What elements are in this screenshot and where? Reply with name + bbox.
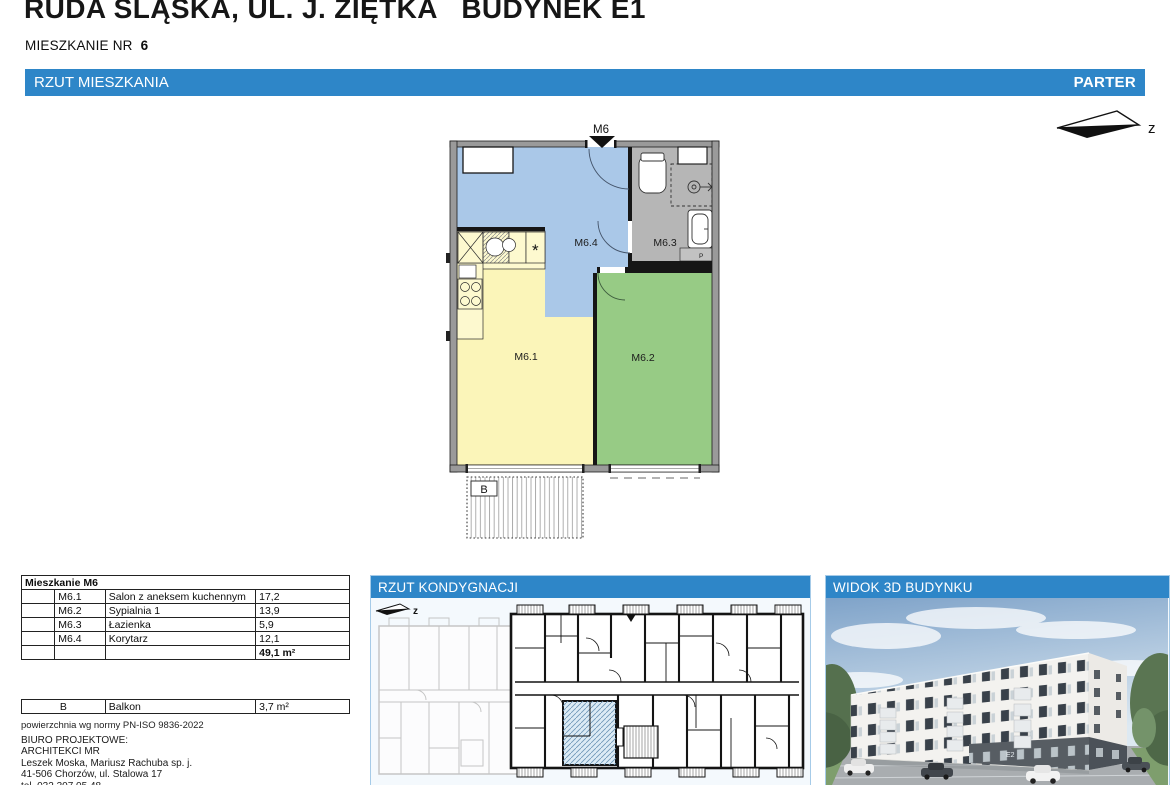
- storey-panel-header: RZUT KONDYGNACJI: [371, 576, 810, 598]
- ghost-building: [379, 618, 519, 774]
- storey-panel-title: RZUT KONDYGNACJI: [378, 580, 518, 595]
- balcony: B: [467, 477, 700, 538]
- shaft-box-hall: [463, 147, 513, 173]
- north-arrow-small-icon: z: [375, 601, 425, 619]
- apartment-label: MIESZKANIE NR: [25, 38, 133, 53]
- design-office-block: BIURO PROJEKTOWE: ARCHITEKCI MR Leszek M…: [21, 735, 192, 785]
- entrance-arrow-icon: [589, 136, 615, 148]
- bath-door-opening: [628, 221, 632, 253]
- washing-machine-label: P: [699, 253, 703, 260]
- kitchen-symbol: *: [532, 241, 539, 260]
- apartment-number: 6: [141, 38, 149, 53]
- office-line: tel. 032 307 05 48.: [21, 781, 192, 785]
- table-row: B Balkon 3,7 m²: [22, 700, 350, 714]
- balcony-code: B: [22, 700, 106, 714]
- room-code: M6.3: [55, 618, 105, 632]
- table-row: M6.2 Sypialnia 1 13,9: [22, 604, 350, 618]
- stairwell: [624, 726, 658, 758]
- page-title: RUDA ŚLĄSKA, UL. J. ZIĘTKA BUDYNEK E1: [24, 0, 646, 25]
- office-line: 41-506 Chorzów, ul. Stalowa 17: [21, 769, 192, 780]
- room-label-living: M6.1: [514, 351, 538, 363]
- room-area: 12,1: [256, 632, 350, 646]
- office-line: BIURO PROJEKTOWE:: [21, 735, 192, 746]
- table-row: M6.4 Korytarz 12,1: [22, 632, 350, 646]
- apartment-floor-plan: * P: [438, 103, 738, 553]
- north-arrow-label: z: [1148, 120, 1156, 137]
- room-name: Sypialnia 1: [105, 604, 255, 618]
- highlighted-apartment: [563, 701, 616, 765]
- storey-plan-panel: RZUT KONDYGNACJI: [370, 575, 811, 785]
- room-name: Salon z aneksem kuchennym: [105, 590, 255, 604]
- view3d-panel-title: WIDOK 3D BUDYNKU: [833, 580, 973, 595]
- table-total-row: 49,1 m²: [22, 646, 350, 660]
- room-label-bedroom: M6.2: [631, 352, 655, 364]
- area-table-title: Mieszkanie M6: [22, 576, 350, 590]
- room-label-bath: M6.3: [653, 237, 677, 249]
- section-bar: RZUT MIESZKANIA PARTER: [25, 69, 1145, 96]
- table-row: M6.3 Łazienka 5,9: [22, 618, 350, 632]
- total-area: 49,1 m²: [256, 646, 350, 660]
- entrance-label: M6: [593, 124, 609, 136]
- table-row: M6.1 Salon z aneksem kuchennym 17,2: [22, 590, 350, 604]
- room-label-hall: M6.4: [574, 237, 598, 249]
- room-code: M6.4: [55, 632, 105, 646]
- room-area: 5,9: [256, 618, 350, 632]
- room-code: M6.1: [55, 590, 105, 604]
- building-3d-view: E2: [826, 598, 1168, 785]
- view3d-panel: WIDOK 3D BUDYNKU: [825, 575, 1170, 785]
- view3d-panel-header: WIDOK 3D BUDYNKU: [826, 576, 1169, 598]
- north-arrow-icon: z: [1053, 104, 1168, 148]
- window-bottom-living: [467, 465, 583, 472]
- office-line: ARCHITEKCI MR: [21, 746, 192, 757]
- room-name: Łazienka: [105, 618, 255, 632]
- room-area: 17,2: [256, 590, 350, 604]
- room-name: Korytarz: [105, 632, 255, 646]
- washing-machine-box: [680, 248, 712, 261]
- office-line: Leszek Moska, Mariusz Rachuba sp. j.: [21, 758, 192, 769]
- storey-building: [511, 605, 803, 777]
- room-code: M6.2: [55, 604, 105, 618]
- toilet-icon: [639, 156, 666, 193]
- section-bar-title: RZUT MIESZKANIA: [25, 74, 169, 91]
- floor-badge: PARTER: [1074, 74, 1145, 91]
- bedroom-door-opening: [600, 267, 625, 273]
- storey-plan-drawing: [371, 598, 809, 785]
- apartment-subtitle: MIESZKANIE NR6: [25, 38, 148, 53]
- area-table-header: Mieszkanie M6: [22, 576, 350, 590]
- north-arrow-small-label: z: [413, 606, 418, 617]
- room-fill-bedroom: [597, 273, 712, 465]
- balcony-name: Balkon: [105, 700, 255, 714]
- stove-icon: [458, 279, 482, 309]
- balcony-area: 3,7 m²: [256, 700, 350, 714]
- room-area: 13,9: [256, 604, 350, 618]
- balcony-label: B: [480, 484, 487, 496]
- entrance-sign: E2: [1006, 752, 1015, 759]
- plan-sheet: RUDA ŚLĄSKA, UL. J. ZIĘTKA BUDYNEK E1 MI…: [0, 0, 1170, 785]
- area-table: Mieszkanie M6 M6.1 Salon z aneksem kuche…: [21, 575, 350, 660]
- window-bottom-bedroom: [610, 465, 700, 472]
- norm-footnote: powierzchnia wg normy PN-ISO 9836-2022: [21, 720, 204, 731]
- balcony-table: B Balkon 3,7 m²: [21, 699, 350, 714]
- shaft-box-bath: [678, 147, 707, 164]
